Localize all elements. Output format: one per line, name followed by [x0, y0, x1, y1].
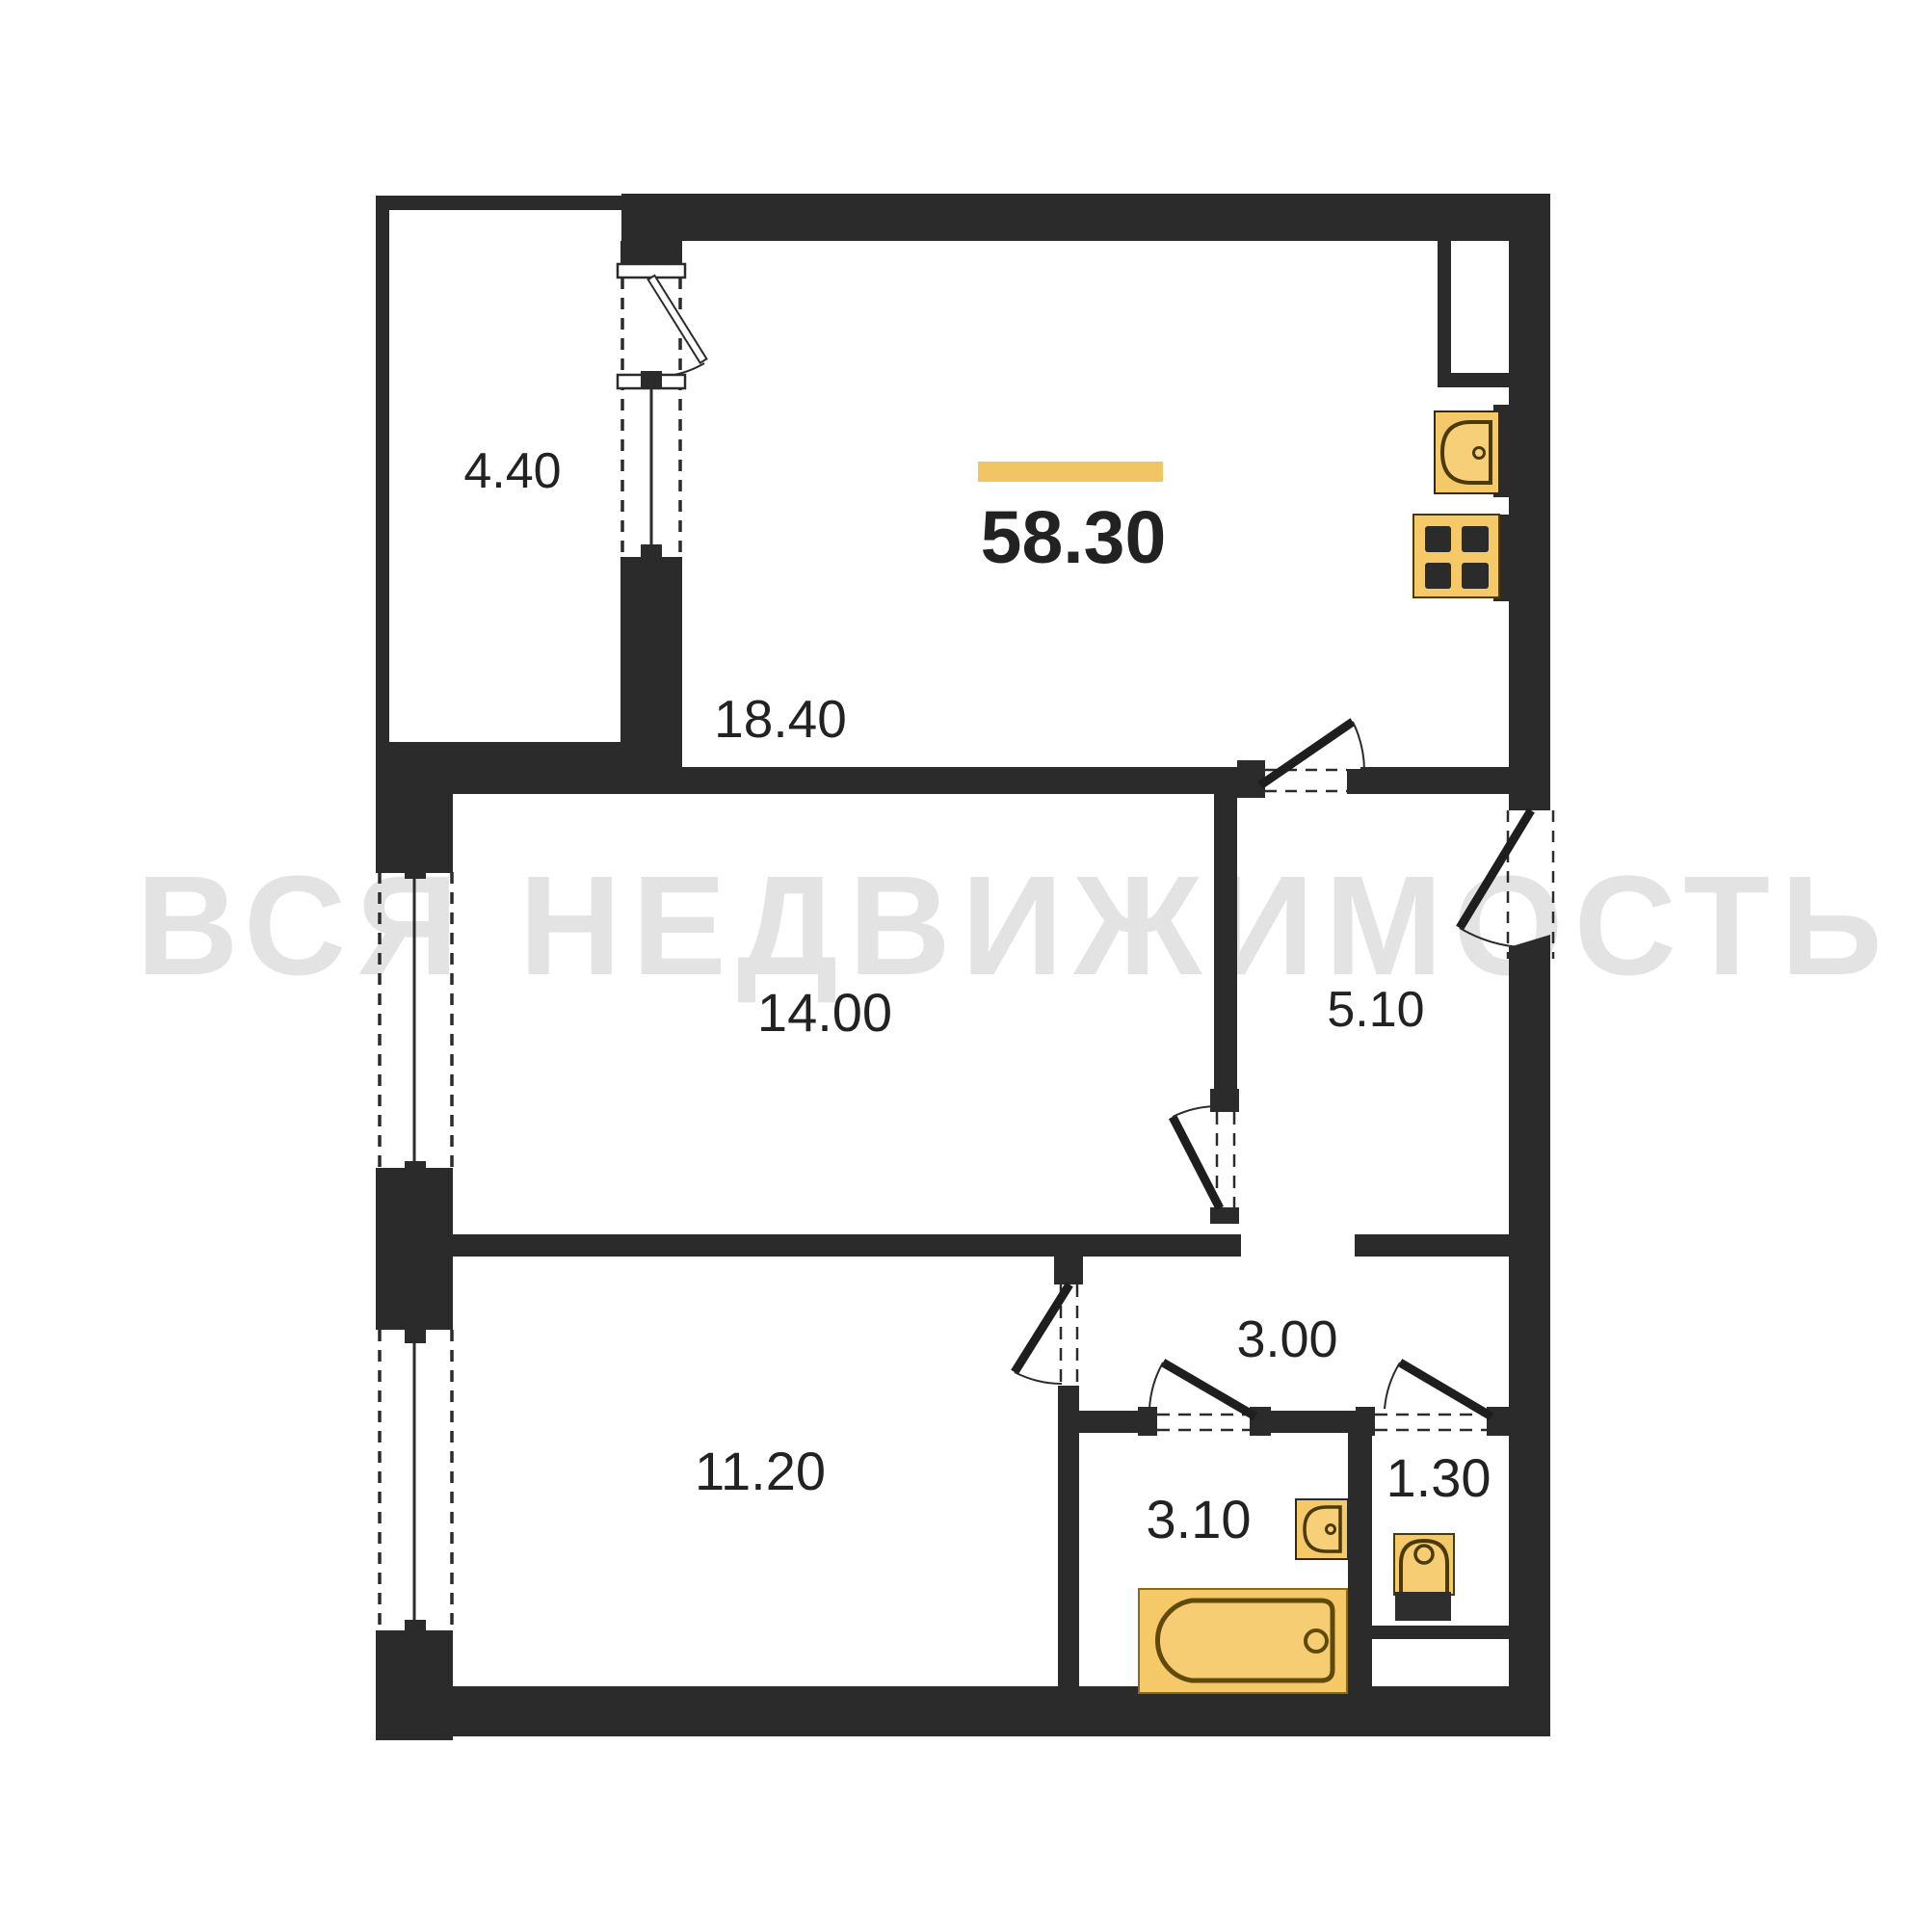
svg-text:18.40: 18.40	[714, 689, 847, 749]
svg-text:58.30: 58.30	[981, 496, 1167, 579]
svg-text:3.00: 3.00	[1236, 1310, 1337, 1368]
svg-text:5.10: 5.10	[1327, 982, 1424, 1038]
svg-text:4.40: 4.40	[463, 443, 561, 499]
svg-text:14.00: 14.00	[757, 982, 892, 1043]
svg-text:1.30: 1.30	[1386, 1447, 1491, 1508]
svg-text:11.20: 11.20	[695, 1441, 826, 1501]
svg-text:3.10: 3.10	[1147, 1489, 1252, 1549]
